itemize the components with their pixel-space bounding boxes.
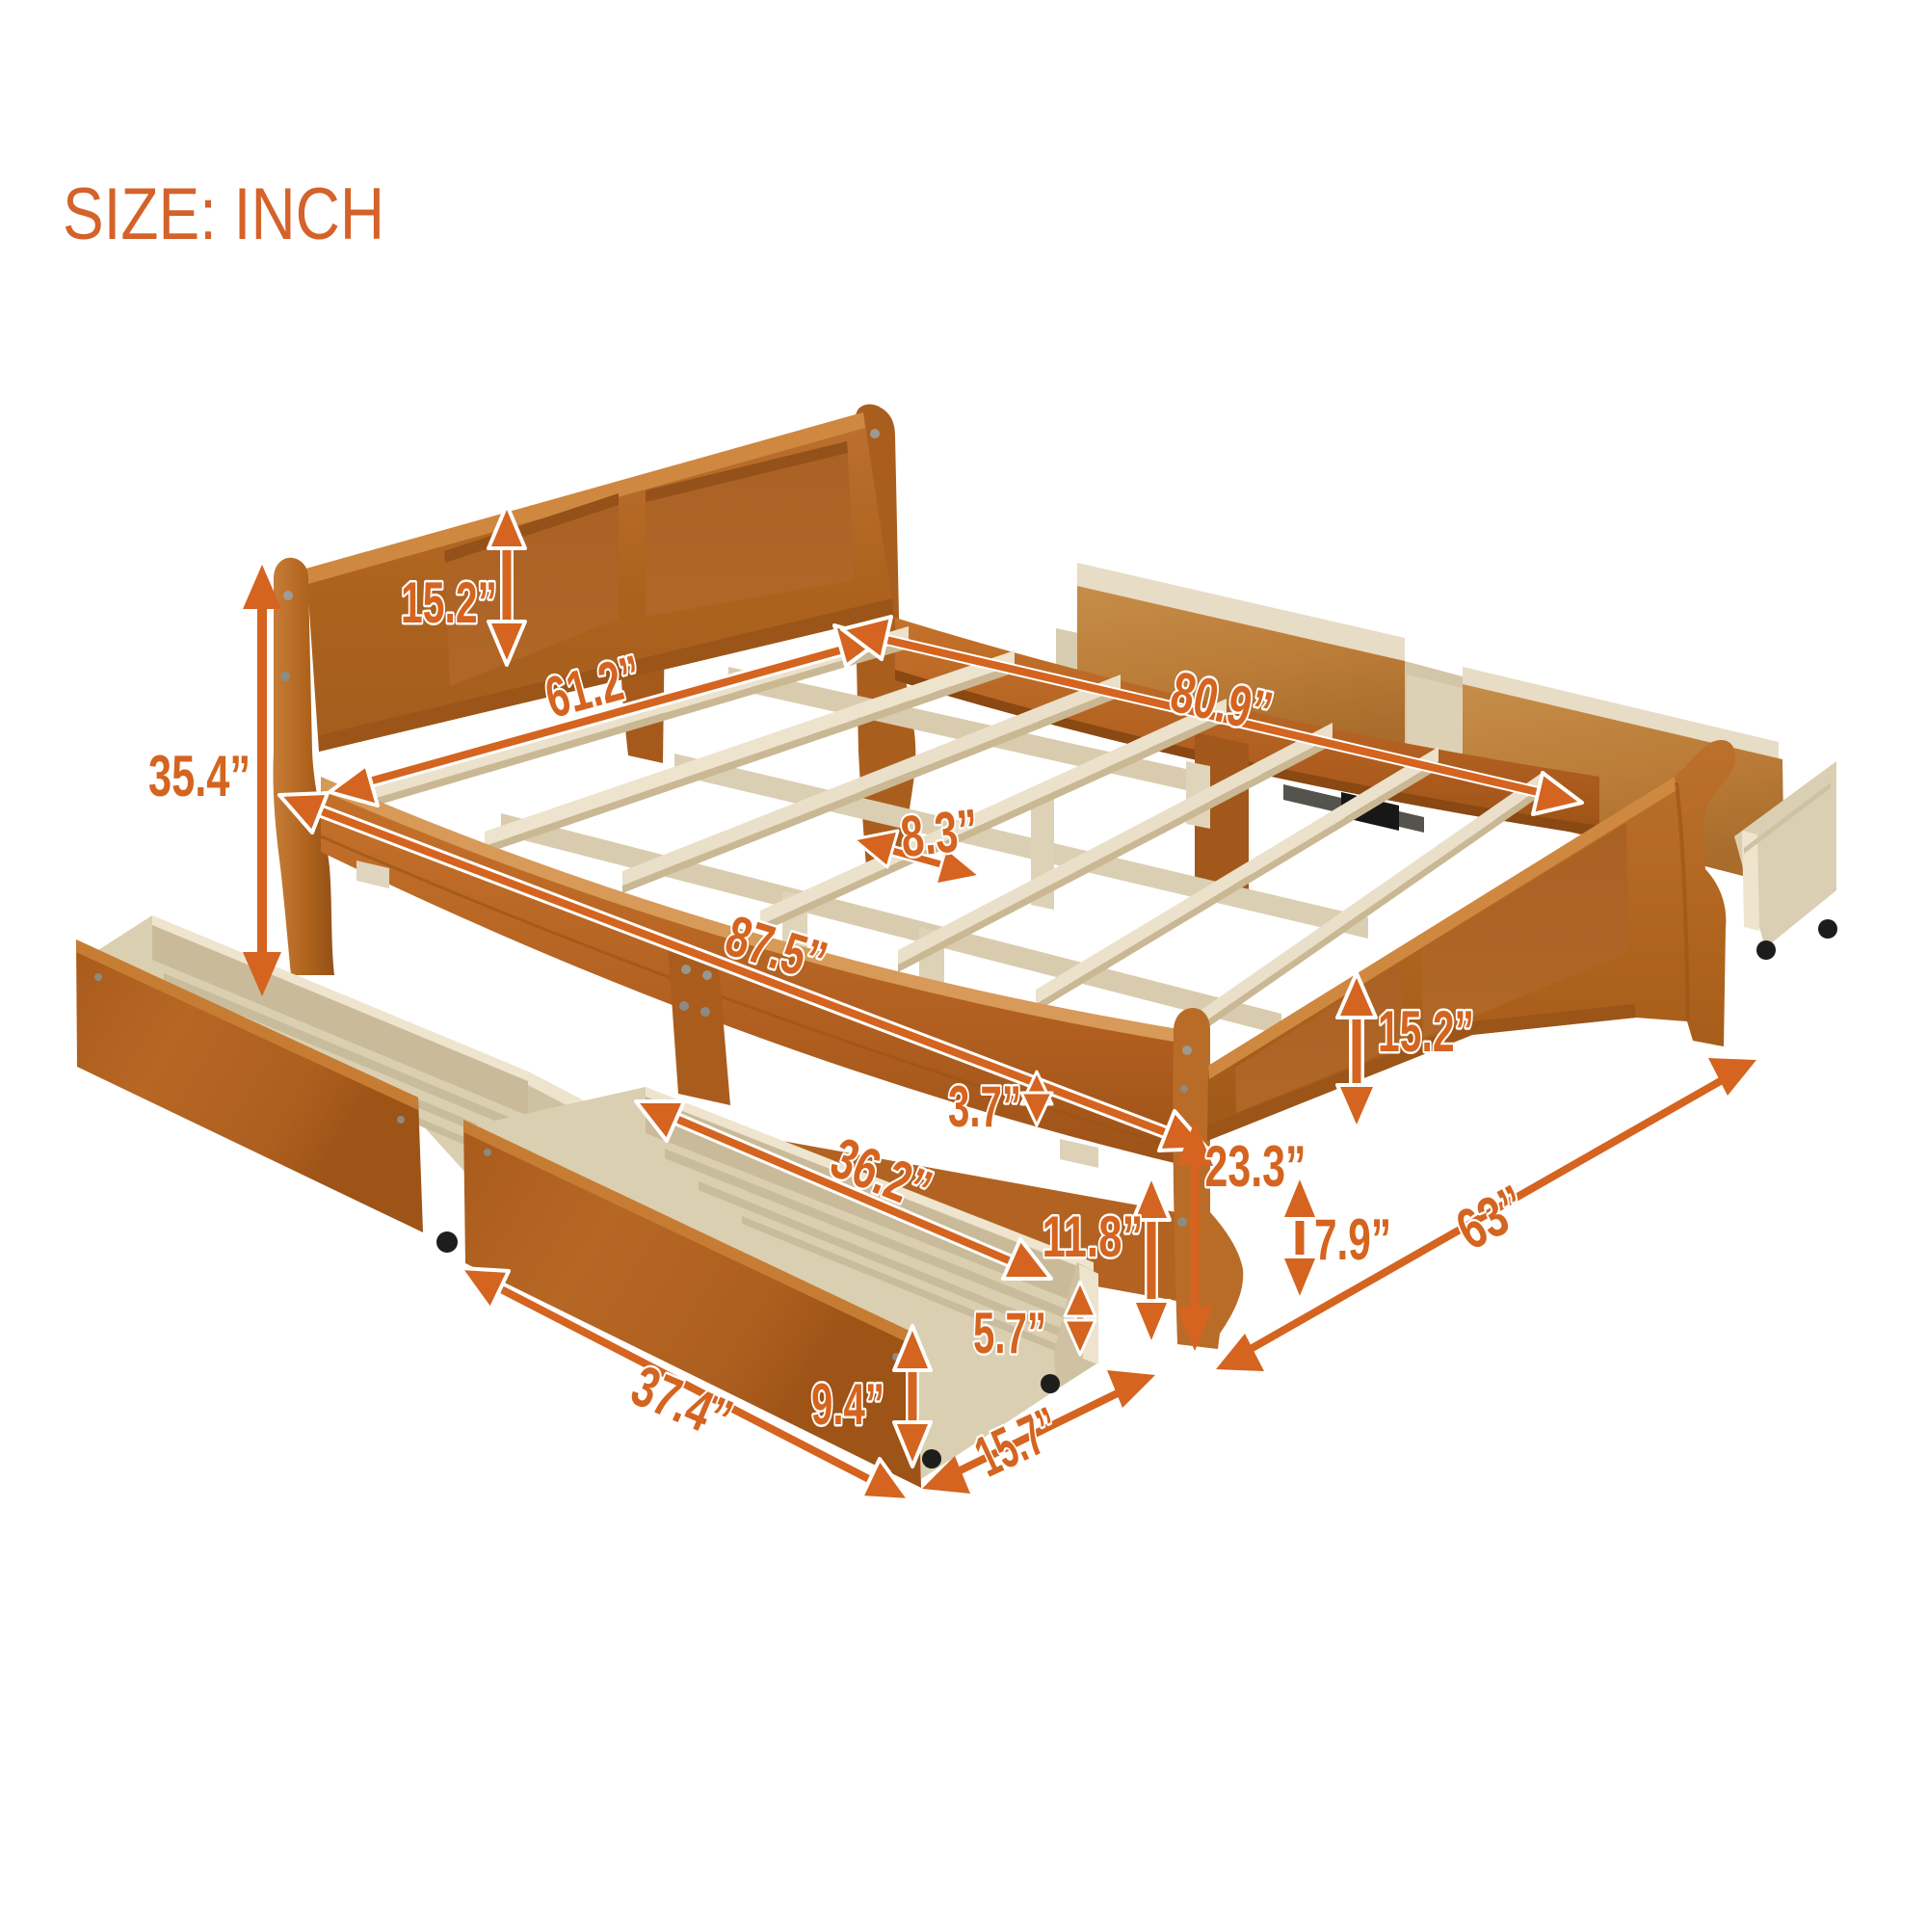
svg-text:9.4”: 9.4” <box>811 1372 884 1437</box>
svg-text:11.8”: 11.8” <box>1043 1204 1144 1269</box>
svg-text:15.2”: 15.2” <box>401 570 497 635</box>
svg-text:23.3”: 23.3” <box>1205 1134 1307 1199</box>
svg-text:15.2”: 15.2” <box>1378 999 1474 1064</box>
svg-text:8.3”: 8.3” <box>898 797 982 869</box>
svg-text:SIZE: INCH: SIZE: INCH <box>63 173 384 255</box>
svg-text:7.9”: 7.9” <box>1314 1207 1391 1272</box>
svg-text:5.7”: 5.7” <box>973 1301 1046 1365</box>
svg-text:3.7”: 3.7” <box>948 1074 1021 1139</box>
svg-text:35.4”: 35.4” <box>148 744 251 808</box>
